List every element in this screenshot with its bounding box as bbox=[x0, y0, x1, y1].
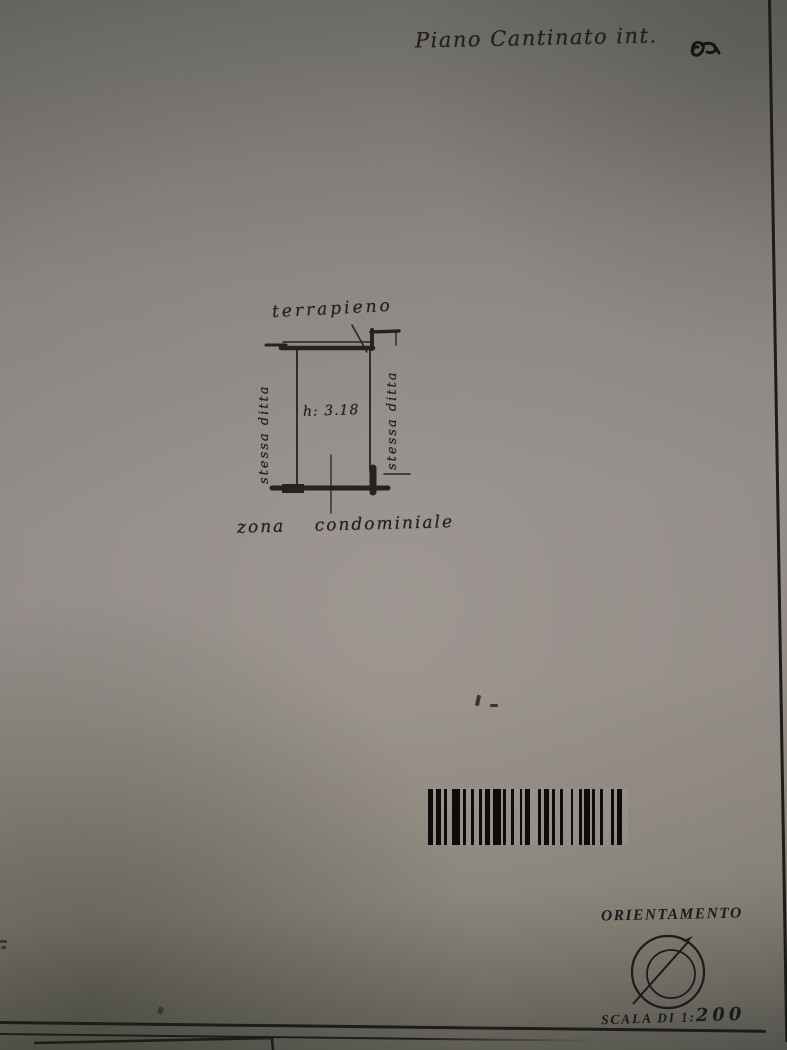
label-stessa-ditta-left: stessa ditta bbox=[257, 356, 272, 484]
barcode-space bbox=[563, 789, 571, 845]
smudge-mark-1 bbox=[475, 695, 481, 707]
handwritten-title: Piano Cantinato int. bbox=[415, 23, 658, 52]
scale-label: SCALA DI 1:200 bbox=[601, 1004, 746, 1030]
orientation-title: ORIENTAMENTO bbox=[601, 905, 743, 926]
left-edge-mark-2 bbox=[1, 946, 6, 949]
compass-inner-circle bbox=[647, 950, 695, 998]
left-edge-mark-1 bbox=[0, 940, 7, 943]
barcode-bar bbox=[493, 789, 501, 845]
barcode-bar bbox=[452, 789, 460, 845]
compass-icon bbox=[624, 928, 716, 1014]
scanned-document-page: Piano Cantinato int. bbox=[0, 0, 787, 1050]
barcode-space bbox=[603, 789, 611, 845]
bottom-small-mark bbox=[157, 1006, 164, 1014]
page-right-border bbox=[768, 0, 787, 1042]
label-zona-condominiale: zona condominiale bbox=[237, 512, 455, 538]
barcode-space bbox=[530, 789, 538, 845]
bottom-stamp-box-edge bbox=[0, 1032, 320, 1050]
label-stessa-ditta-right: stessa ditta bbox=[385, 342, 400, 470]
barcode bbox=[428, 789, 628, 845]
label-room-height: h: 3.18 bbox=[303, 402, 360, 420]
smudge-mark-2 bbox=[490, 704, 498, 707]
scale-prefix: SCALA DI 1: bbox=[601, 1009, 696, 1027]
wall-bottom-left-blob bbox=[282, 484, 304, 493]
wall-topright-flange bbox=[371, 331, 399, 332]
barcode-space bbox=[622, 789, 625, 845]
title-scribble-mark bbox=[688, 37, 722, 62]
scale-value: 200 bbox=[695, 1004, 745, 1027]
